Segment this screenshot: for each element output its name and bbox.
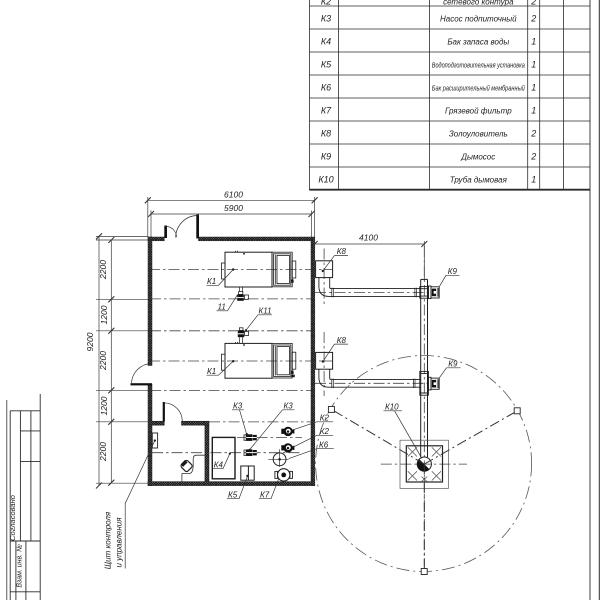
svg-text:К7: К7: [260, 491, 270, 500]
svg-text:К3: К3: [284, 402, 294, 411]
svg-text:Труба дымовая: Труба дымовая: [450, 176, 508, 185]
svg-text:К1: К1: [207, 277, 216, 286]
svg-text:К4: К4: [321, 37, 331, 47]
svg-text:К9: К9: [448, 360, 458, 369]
svg-text:1: 1: [531, 37, 536, 47]
svg-text:2200: 2200: [98, 351, 108, 371]
svg-text:Дымосос: Дымосос: [460, 153, 495, 162]
svg-text:4100: 4100: [359, 233, 378, 243]
svg-text:К3: К3: [233, 402, 243, 411]
svg-text:К11: К11: [259, 307, 272, 316]
svg-text:К3: К3: [321, 14, 331, 24]
svg-text:Водоподготовительная установка: Водоподготовительная установка: [432, 61, 525, 70]
svg-text:1: 1: [531, 83, 536, 93]
svg-text:9200: 9200: [85, 332, 95, 351]
svg-text:К5: К5: [228, 491, 238, 500]
svg-text:Взам. инв. №: Взам. инв. №: [17, 544, 24, 588]
svg-text:К6: К6: [321, 83, 331, 93]
svg-text:Насос подпиточный: Насос подпиточный: [440, 15, 517, 24]
svg-text:1: 1: [531, 60, 536, 70]
svg-text:1: 1: [531, 106, 536, 116]
svg-text:2: 2: [530, 152, 536, 162]
svg-text:К7: К7: [321, 106, 332, 116]
svg-text:К1: К1: [207, 367, 216, 376]
svg-text:сетевого контура: сетевого контура: [443, 0, 514, 7]
svg-text:К9: К9: [321, 152, 331, 162]
svg-text:1: 1: [531, 175, 536, 185]
svg-text:11: 11: [218, 303, 226, 312]
svg-text:К8: К8: [337, 336, 347, 345]
svg-text:2200: 2200: [98, 442, 108, 462]
svg-text:5900: 5900: [224, 203, 243, 213]
svg-text:К8: К8: [337, 247, 347, 256]
svg-text:Щит контроля: Щит контроля: [104, 511, 113, 569]
svg-text:Золоуловитель: Золоуловитель: [449, 130, 508, 139]
svg-text:К4: К4: [214, 461, 224, 470]
svg-text:2200: 2200: [98, 260, 108, 280]
svg-text:2: 2: [530, 129, 536, 139]
svg-text:1200: 1200: [99, 396, 109, 415]
svg-text:2: 2: [530, 14, 536, 24]
svg-text:К10: К10: [318, 175, 333, 185]
svg-text:К6: К6: [319, 441, 329, 450]
svg-text:К10: К10: [385, 403, 399, 412]
svg-text:К2: К2: [321, 0, 331, 7]
svg-text:Согласовано: Согласовано: [8, 495, 17, 541]
svg-text:1200: 1200: [99, 305, 109, 324]
svg-text:6100: 6100: [224, 190, 243, 200]
svg-text:Бак запаса воды: Бак запаса воды: [447, 38, 509, 47]
svg-text:К2: К2: [320, 414, 330, 423]
svg-text:К9: К9: [448, 267, 458, 276]
svg-text:и управления: и управления: [115, 517, 124, 568]
svg-text:К5: К5: [321, 60, 332, 70]
svg-text:Грязевой фильтр: Грязевой фильтр: [445, 107, 512, 116]
svg-text:2: 2: [530, 0, 536, 7]
svg-text:К8: К8: [321, 129, 331, 139]
svg-text:Бак расширительный мембранный: Бак расширительный мембранный: [432, 84, 525, 93]
